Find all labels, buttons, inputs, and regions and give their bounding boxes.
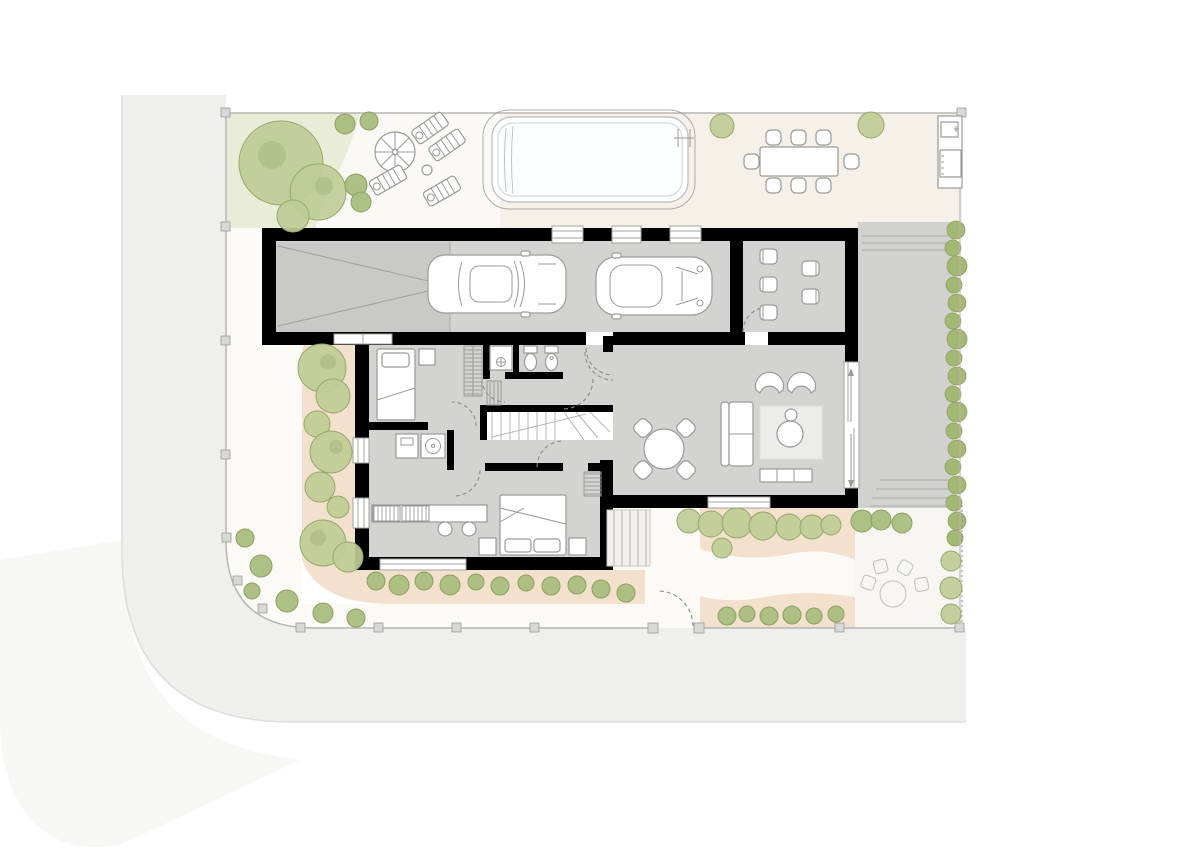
window-north-2 <box>612 226 641 243</box>
single-bed-icon <box>377 349 415 420</box>
nightstand-icon <box>569 538 586 555</box>
driveway <box>858 222 954 508</box>
utility-set <box>396 434 445 458</box>
stool-icon <box>438 522 452 536</box>
boundary-trees-se <box>940 551 962 624</box>
chair-icon <box>802 289 819 304</box>
round-table-icon <box>644 429 684 469</box>
sofa-icon <box>721 402 753 466</box>
window-north-1 <box>552 226 583 243</box>
toilet-icon <box>524 346 537 371</box>
pool-area <box>483 110 695 209</box>
closet-icon <box>487 381 501 405</box>
exterior-steps <box>607 510 650 566</box>
plant-icon <box>785 409 797 421</box>
window-north-3 <box>670 226 701 243</box>
wardrobe-icon <box>464 346 482 396</box>
pouf-icon <box>777 421 803 447</box>
dining-table-icon <box>760 147 838 176</box>
sliding-door-east <box>844 362 859 488</box>
grill-icon <box>940 150 961 177</box>
car-icon <box>596 253 712 319</box>
side-table-icon <box>422 165 432 175</box>
double-bed-icon <box>500 495 566 555</box>
nightstand-icon <box>479 538 496 555</box>
window-west-1 <box>353 438 369 463</box>
window-west-2 <box>353 498 369 528</box>
wardrobe-icon <box>584 472 601 496</box>
car-icon <box>428 251 566 317</box>
chair-icon <box>760 277 777 292</box>
chair-icon <box>760 249 777 264</box>
chair-icon <box>802 261 819 276</box>
floor-plan-page <box>0 0 1200 848</box>
window-inner-band <box>334 334 392 344</box>
pool <box>492 117 688 202</box>
window-south-living <box>708 497 770 508</box>
outdoor-kitchen <box>938 116 962 188</box>
chair-icon <box>760 305 777 320</box>
washer-icon <box>396 434 418 458</box>
floor-plan-drawing <box>0 0 1200 848</box>
tv-sideboard-icon <box>760 469 812 482</box>
stool-icon <box>462 522 476 536</box>
window-south-bedroom <box>380 559 466 570</box>
parasol-icon <box>375 132 415 172</box>
nightstand-icon <box>419 349 435 365</box>
garage-door-zone <box>276 242 450 332</box>
stairs <box>487 412 613 440</box>
bidet-icon <box>545 346 558 371</box>
sink-unit-icon <box>421 434 445 458</box>
